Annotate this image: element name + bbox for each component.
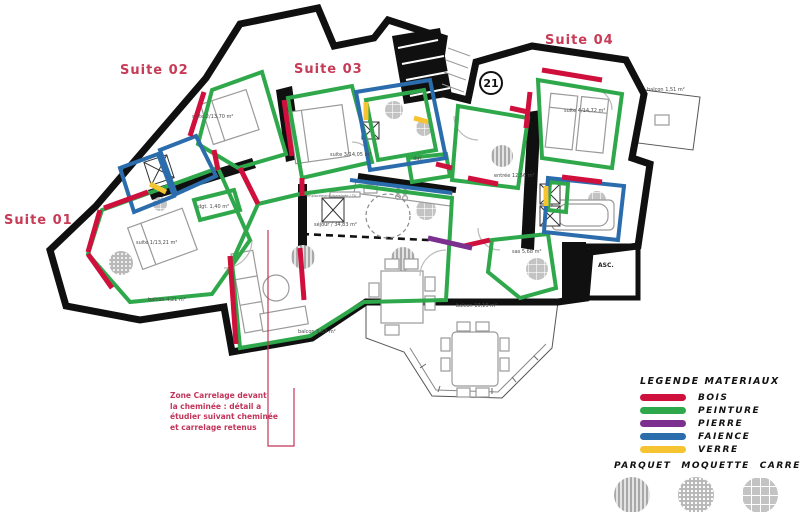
balcony-side-table	[655, 115, 669, 125]
legend-row-pierre: PIERRE	[640, 417, 798, 430]
pierre-color-swatch	[640, 420, 686, 427]
room-label-suite2: suite 2/13,70 m²	[192, 114, 233, 120]
bois-color-swatch	[640, 394, 686, 401]
annotation-line: la cheminée : détail a	[170, 402, 292, 413]
room-label-suite3: suite 3/14,05 m²	[330, 152, 371, 158]
peinture-label: PEINTURE	[698, 406, 760, 416]
room-label-ascenseur: ASC.	[598, 262, 614, 269]
moquette-pattern-swatch	[678, 477, 714, 512]
floor-types-row: PARQUET MOQUETTE CARRELAGE	[614, 461, 798, 471]
annotation-line: Zone Carrelage devant	[170, 391, 292, 402]
cheminee-note: emplacement cheminée / TV	[306, 194, 356, 198]
bois-label: BOIS	[698, 393, 728, 403]
room-label-sas: sas 5,68 m²	[512, 249, 541, 255]
room-label-balcon-ouest: balcon 5,63 m²	[298, 329, 336, 335]
annotation-line: et carrelage retenus	[170, 423, 292, 434]
legend-title: LEGENDE MATERIAUX	[640, 376, 798, 387]
carrelage-pattern-swatch	[742, 477, 778, 512]
room-label-entree: entrée 12,56 m²	[494, 173, 535, 179]
room-label-suite4: suite 4/14,72 m²	[564, 108, 605, 114]
pierre-label: PIERRE	[698, 419, 743, 429]
room-label-dgt1: dgt. 1,40 m²	[198, 204, 229, 210]
legend-row-peinture: PEINTURE	[640, 404, 798, 417]
faience-color-swatch	[640, 433, 686, 440]
room-label-balcon-suite1: balcon 4,21 m²	[148, 297, 186, 303]
parquet-label: PARQUET	[614, 461, 671, 471]
verre-color-swatch	[640, 446, 686, 453]
legend-row-verre: VERRE	[640, 443, 798, 456]
suite-02-label: Suite 02	[120, 63, 189, 78]
carrelage-annotation: Zone Carrelage devant la cheminée : déta…	[170, 391, 292, 433]
suite-04-label: Suite 04	[545, 33, 614, 48]
moquette-label: MOQUETTE	[681, 461, 749, 471]
room-label-dgt2: dgt.	[413, 156, 423, 162]
legend-row-bois: BOIS	[640, 391, 798, 404]
materials-legend: LEGENDE MATERIAUX BOIS PEINTURE PIERRE F…	[612, 376, 798, 512]
suite-01-label: Suite 01	[4, 213, 73, 228]
carrelage-label: CARRELAGE	[760, 461, 800, 471]
floor-pattern-swatches	[614, 477, 798, 512]
room-label-suite1: suite 1/13,21 m²	[136, 240, 177, 246]
faience-label: FAIENCE	[698, 432, 750, 442]
parquet-pattern-swatch	[614, 477, 650, 512]
floor-plan-page: Suite 01 Suite 02 Suite 03 Suite 04 21 s…	[0, 0, 800, 512]
room-label-sejour: séjour / 34,83 m²	[314, 222, 357, 228]
legend-row-faience: FAIENCE	[640, 430, 798, 443]
room-label-balcon-sud: balcon 10,19 m²	[456, 303, 497, 309]
peinture-color-swatch	[640, 407, 686, 414]
unit-number-badge: 21	[479, 71, 503, 95]
room-label-balcon-suite4: balcon 1,51 m²	[647, 87, 685, 93]
verre-label: VERRE	[698, 445, 739, 455]
bathtub	[552, 200, 614, 230]
suite-03-label: Suite 03	[294, 62, 363, 77]
annotation-line: étudier suivant cheminée	[170, 412, 292, 423]
